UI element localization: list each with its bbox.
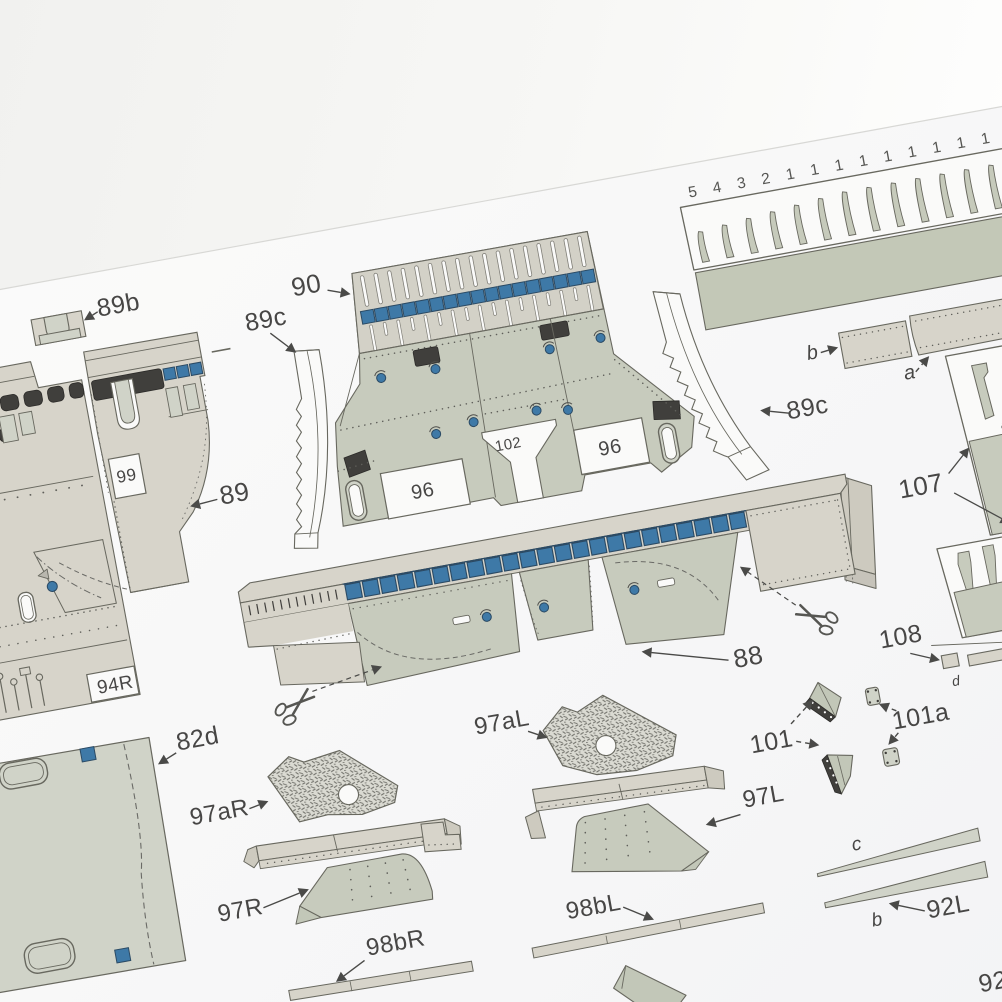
- svg-text:89: 89: [217, 476, 252, 511]
- svg-text:90: 90: [289, 267, 324, 302]
- svg-text:96: 96: [409, 478, 436, 504]
- svg-text:92: 92: [976, 966, 1002, 999]
- svg-text:99: 99: [115, 465, 138, 487]
- svg-text:88: 88: [731, 639, 766, 674]
- svg-text:96: 96: [597, 435, 624, 461]
